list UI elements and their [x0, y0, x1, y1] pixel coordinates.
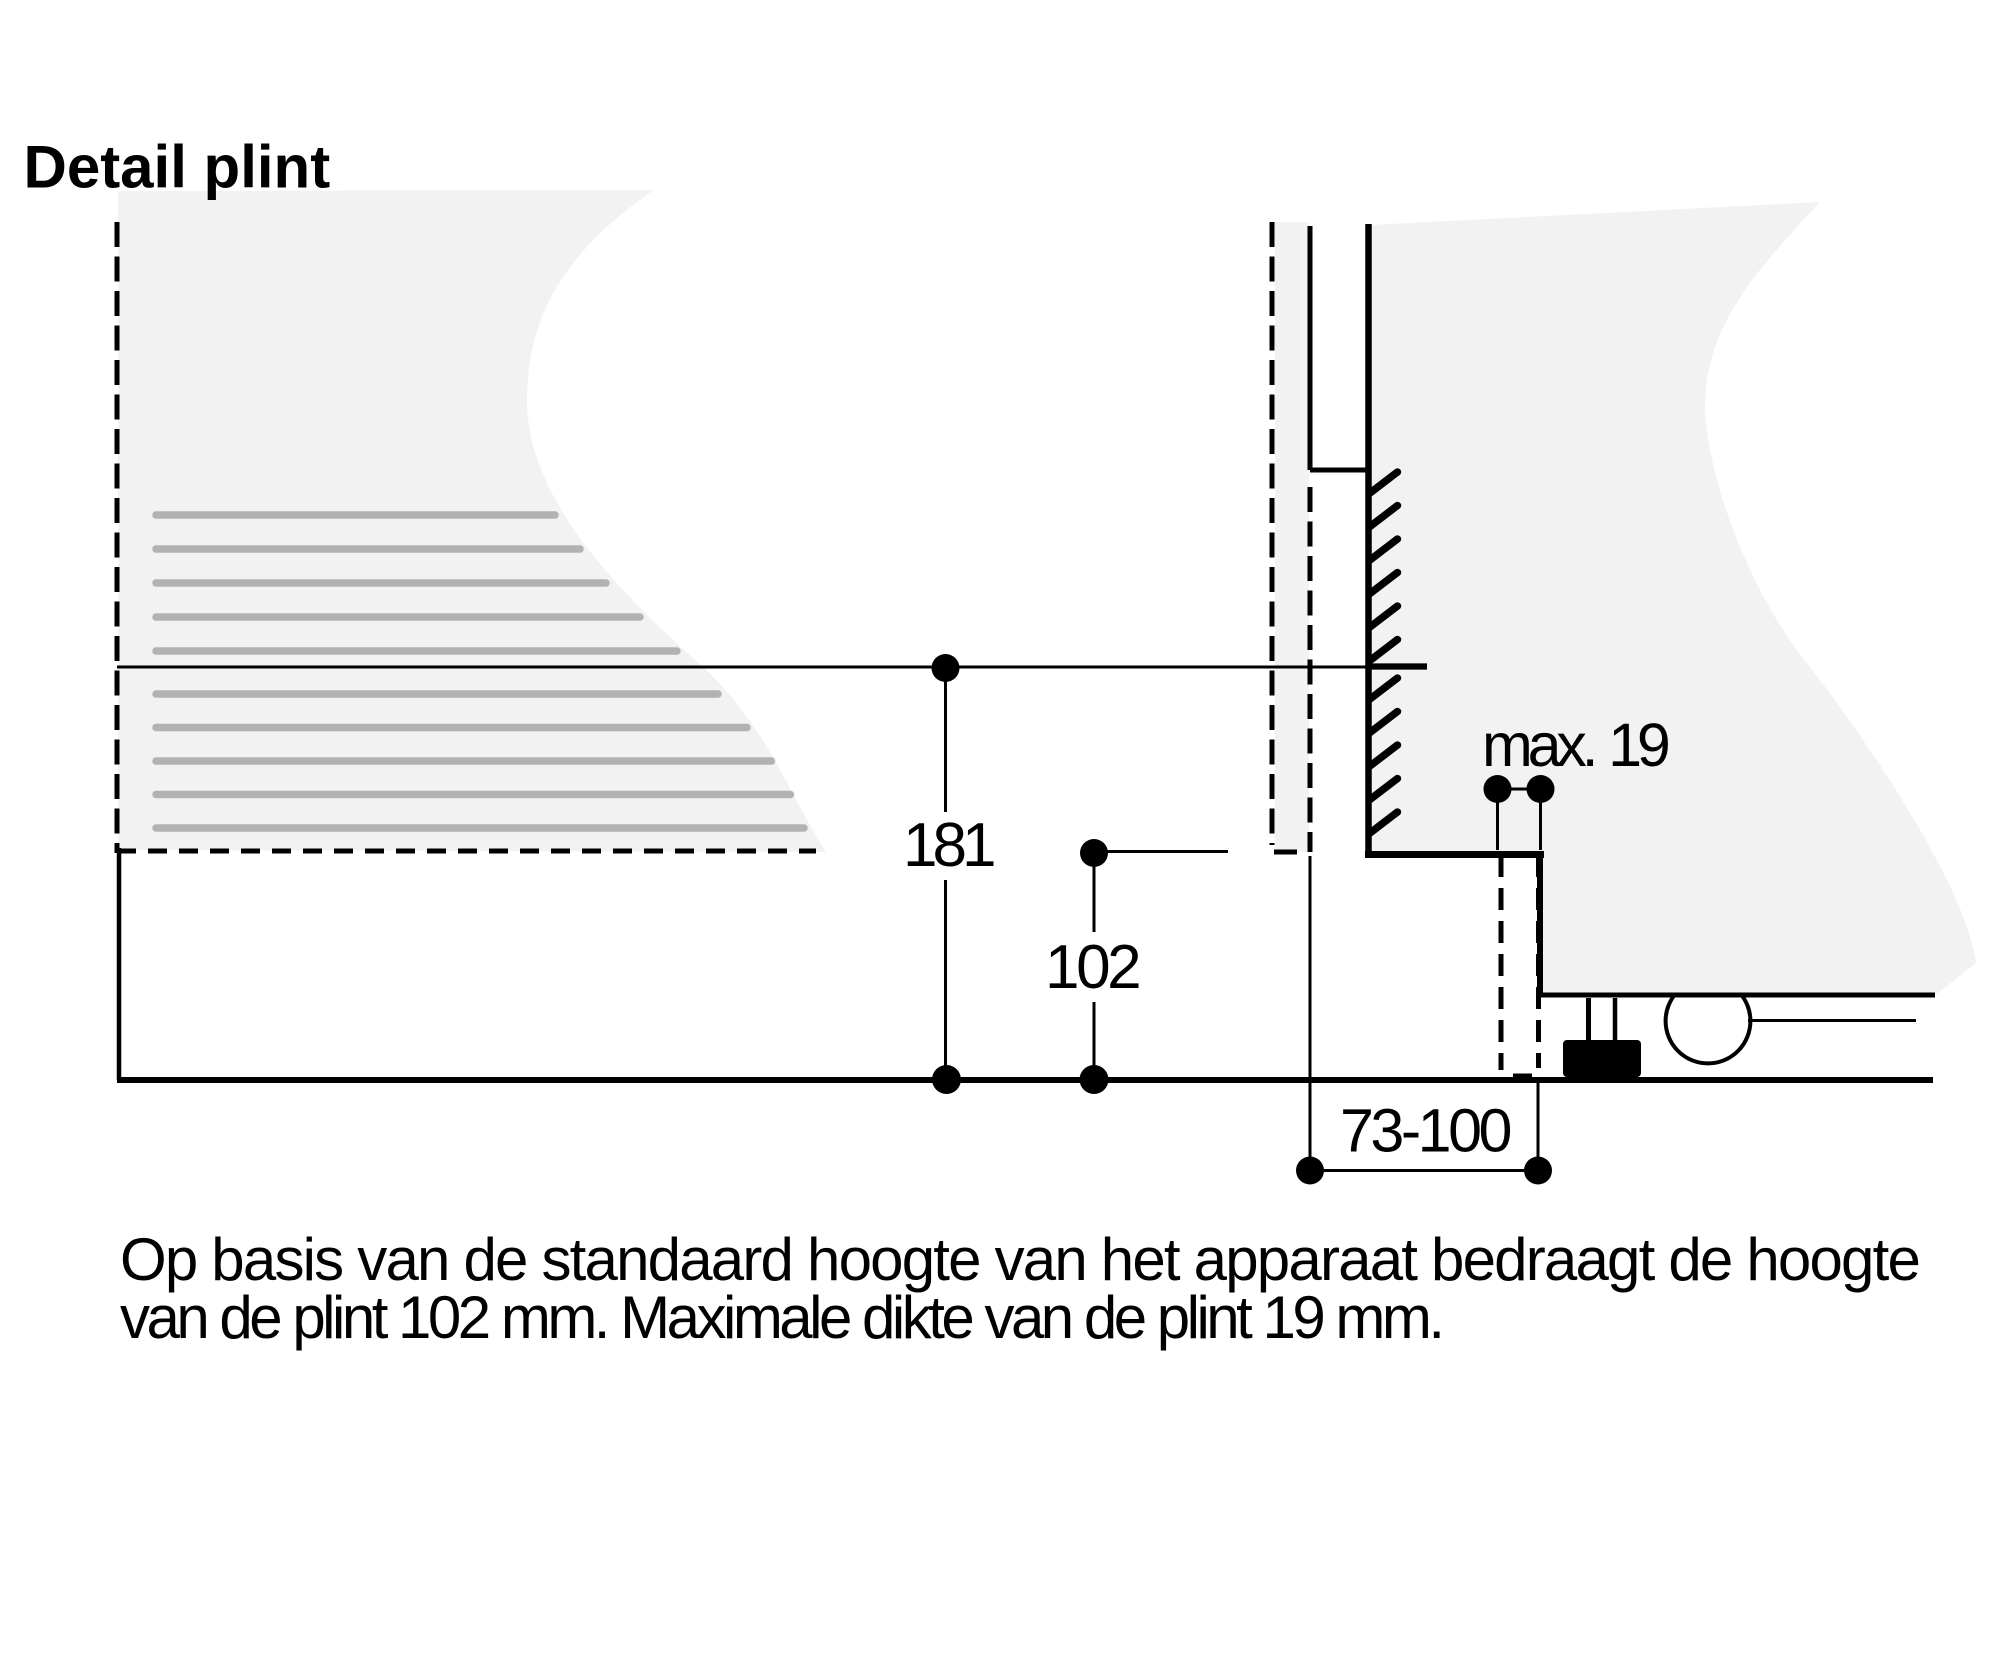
svg-text:Detail plint: Detail plint — [24, 134, 331, 201]
svg-text:max. 19: max. 19 — [1482, 711, 1669, 779]
svg-text:van de plint 102 mm. Maximale: van de plint 102 mm. Maximale dikte van … — [120, 1284, 1442, 1351]
svg-text:181: 181 — [903, 811, 994, 880]
svg-text:Op basis van de standaard hoog: Op basis van de standaard hoogte van het… — [120, 1226, 1919, 1293]
svg-text:102: 102 — [1045, 933, 1139, 1002]
svg-text:73-100: 73-100 — [1340, 1097, 1511, 1165]
